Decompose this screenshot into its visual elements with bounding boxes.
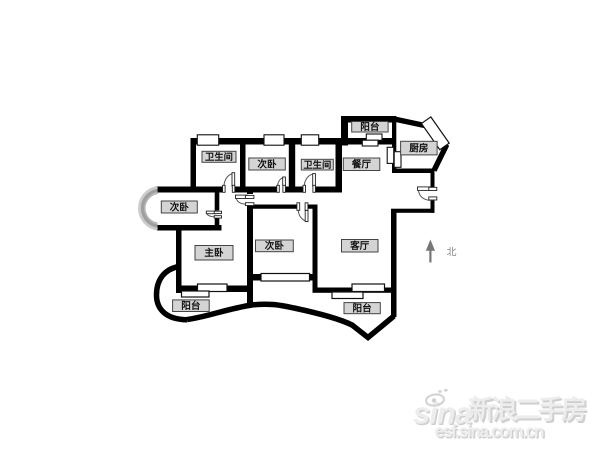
svg-text:厨房: 厨房 bbox=[409, 143, 429, 155]
svg-text:次卧: 次卧 bbox=[257, 158, 277, 170]
svg-text:卫生间: 卫生间 bbox=[303, 159, 331, 170]
svg-text:esf.sina.com.cn: esf.sina.com.cn bbox=[435, 421, 545, 441]
svg-text:卫生间: 卫生间 bbox=[205, 151, 233, 162]
svg-text:阳台: 阳台 bbox=[181, 300, 201, 312]
svg-text:阳台: 阳台 bbox=[360, 121, 380, 133]
svg-text:次卧: 次卧 bbox=[170, 201, 190, 213]
svg-text:主卧: 主卧 bbox=[204, 247, 224, 259]
svg-text:北: 北 bbox=[447, 247, 457, 259]
svg-text:客厅: 客厅 bbox=[349, 240, 370, 252]
svg-text:次卧: 次卧 bbox=[265, 240, 285, 252]
svg-text:阳台: 阳台 bbox=[353, 303, 373, 315]
svg-text:餐厅: 餐厅 bbox=[351, 159, 372, 171]
